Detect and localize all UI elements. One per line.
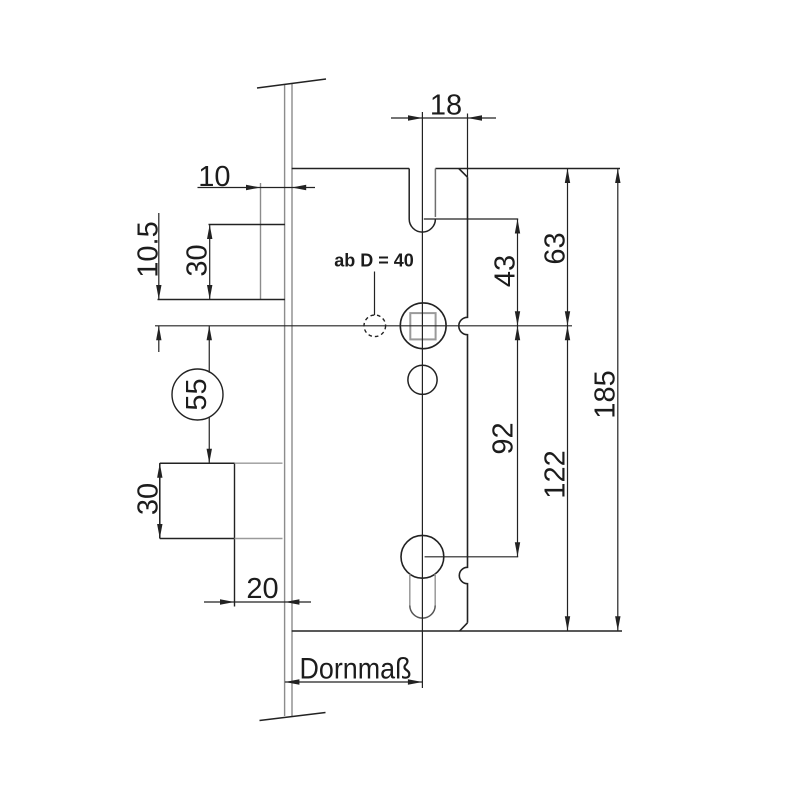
svg-text:63: 63 (540, 232, 572, 264)
svg-text:10.5: 10.5 (133, 221, 165, 277)
svg-text:20: 20 (246, 573, 278, 605)
svg-text:55: 55 (181, 378, 213, 410)
svg-text:ab D = 40: ab D = 40 (334, 251, 414, 271)
svg-text:92: 92 (488, 422, 520, 454)
svg-text:43: 43 (490, 255, 522, 287)
svg-text:122: 122 (540, 450, 572, 498)
svg-text:Dornmaß: Dornmaß (300, 653, 412, 686)
svg-text:30: 30 (133, 483, 165, 515)
svg-text:10: 10 (198, 161, 230, 193)
svg-text:185: 185 (590, 370, 622, 418)
svg-text:18: 18 (430, 90, 462, 122)
svg-text:30: 30 (182, 244, 214, 276)
